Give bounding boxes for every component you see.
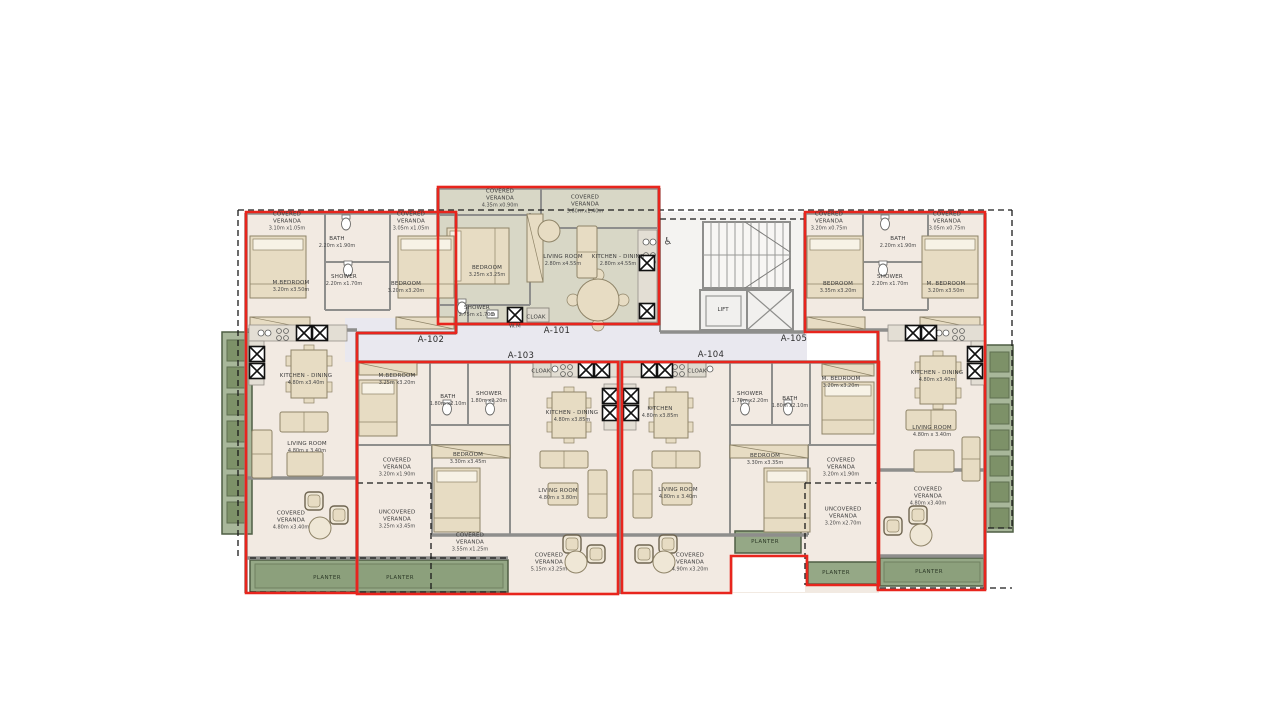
shaft-x-icon bbox=[922, 326, 937, 341]
sofa-icon bbox=[577, 226, 597, 278]
vchair-icon bbox=[909, 506, 927, 524]
vchair-icon bbox=[635, 545, 653, 563]
wc-icon bbox=[344, 261, 353, 276]
shaft-x-icon bbox=[624, 406, 639, 421]
wc-icon bbox=[784, 400, 793, 415]
cloakbox-icon bbox=[533, 363, 551, 377]
wc-icon bbox=[879, 261, 888, 276]
round-table-icon bbox=[653, 551, 675, 573]
sofa-icon bbox=[252, 430, 272, 478]
shaft-x-icon bbox=[640, 304, 655, 319]
shaft-x-icon bbox=[642, 363, 657, 378]
bed-icon bbox=[434, 468, 480, 532]
service-shaft bbox=[747, 290, 793, 330]
wc-icon bbox=[881, 215, 890, 230]
shaft-x-icon bbox=[624, 389, 639, 404]
coffee-icon bbox=[548, 483, 578, 505]
bed-icon bbox=[359, 380, 397, 436]
vchair-icon bbox=[305, 492, 323, 510]
sofa-icon bbox=[280, 412, 328, 432]
floor-plan-canvas: COVEREDVERANDA4.35m x0.90mCOVEREDVERANDA… bbox=[0, 0, 1280, 720]
shaft-x-icon bbox=[595, 363, 610, 378]
shaft-x-icon bbox=[250, 347, 265, 362]
wardrobe-icon bbox=[730, 445, 808, 458]
shaft-x-icon bbox=[250, 364, 265, 379]
dining-icon bbox=[649, 387, 693, 443]
bed-icon bbox=[764, 468, 810, 532]
shaft-x-icon bbox=[640, 256, 655, 271]
round-table-icon bbox=[910, 524, 932, 546]
vchair-icon bbox=[563, 535, 581, 553]
cloakbox-icon bbox=[688, 363, 706, 377]
wc-icon bbox=[443, 400, 452, 415]
basin-icon bbox=[487, 310, 498, 318]
floor-notch bbox=[733, 557, 805, 592]
shaft-x-icon bbox=[603, 389, 618, 404]
coffee-icon bbox=[662, 483, 692, 505]
coffee-icon bbox=[914, 450, 954, 472]
wardrobe-icon bbox=[359, 363, 417, 375]
bed-icon bbox=[922, 236, 978, 298]
sofa-icon bbox=[633, 470, 652, 518]
planter-right-segments bbox=[990, 352, 1009, 528]
wc-icon bbox=[342, 215, 351, 230]
vchair-icon bbox=[330, 506, 348, 524]
wc-icon bbox=[741, 400, 750, 415]
wc-icon bbox=[458, 299, 467, 314]
stair-core bbox=[700, 222, 793, 330]
sofa-icon bbox=[540, 451, 588, 468]
floor-plan-svg bbox=[0, 0, 1280, 720]
bed-icon bbox=[822, 382, 874, 434]
coffee-icon bbox=[287, 452, 323, 476]
shaft-x-icon bbox=[968, 364, 983, 379]
dining-icon bbox=[915, 351, 961, 409]
shaft-x-icon bbox=[297, 326, 312, 341]
bed-icon bbox=[250, 236, 306, 298]
planter-left-segments bbox=[227, 340, 247, 523]
chair-round-icon bbox=[538, 220, 560, 242]
round-table-icon bbox=[309, 517, 331, 539]
wardrobe-icon bbox=[822, 364, 874, 376]
planter-bottom-left-inner bbox=[255, 564, 503, 588]
sofa-icon bbox=[652, 451, 700, 468]
shaft-x-icon bbox=[906, 326, 921, 341]
shaft-x-icon bbox=[968, 347, 983, 362]
shaft-x-icon bbox=[579, 363, 594, 378]
sofa-icon bbox=[962, 437, 980, 481]
planter-a105-strip-inner bbox=[884, 562, 980, 582]
planter-a104-strip bbox=[808, 562, 877, 584]
round-table-icon bbox=[565, 551, 587, 573]
bed-icon bbox=[807, 236, 863, 298]
dining-icon bbox=[286, 345, 332, 403]
bed-icon bbox=[398, 236, 454, 298]
dining-icon bbox=[547, 387, 591, 443]
wardrobe-icon bbox=[807, 317, 865, 329]
shaft-x-icon bbox=[603, 406, 618, 421]
cloakbox-icon bbox=[527, 308, 549, 322]
sofa-icon bbox=[906, 410, 956, 430]
shaft-x-icon bbox=[313, 326, 328, 341]
wardrobe-icon bbox=[432, 445, 510, 458]
shaft-x-icon bbox=[508, 308, 523, 323]
vchair-icon bbox=[587, 545, 605, 563]
vchair-icon bbox=[884, 517, 902, 535]
wc-icon bbox=[486, 400, 495, 415]
sofa-icon bbox=[588, 470, 607, 518]
vchair-icon bbox=[659, 535, 677, 553]
shaft-x-icon bbox=[658, 363, 673, 378]
